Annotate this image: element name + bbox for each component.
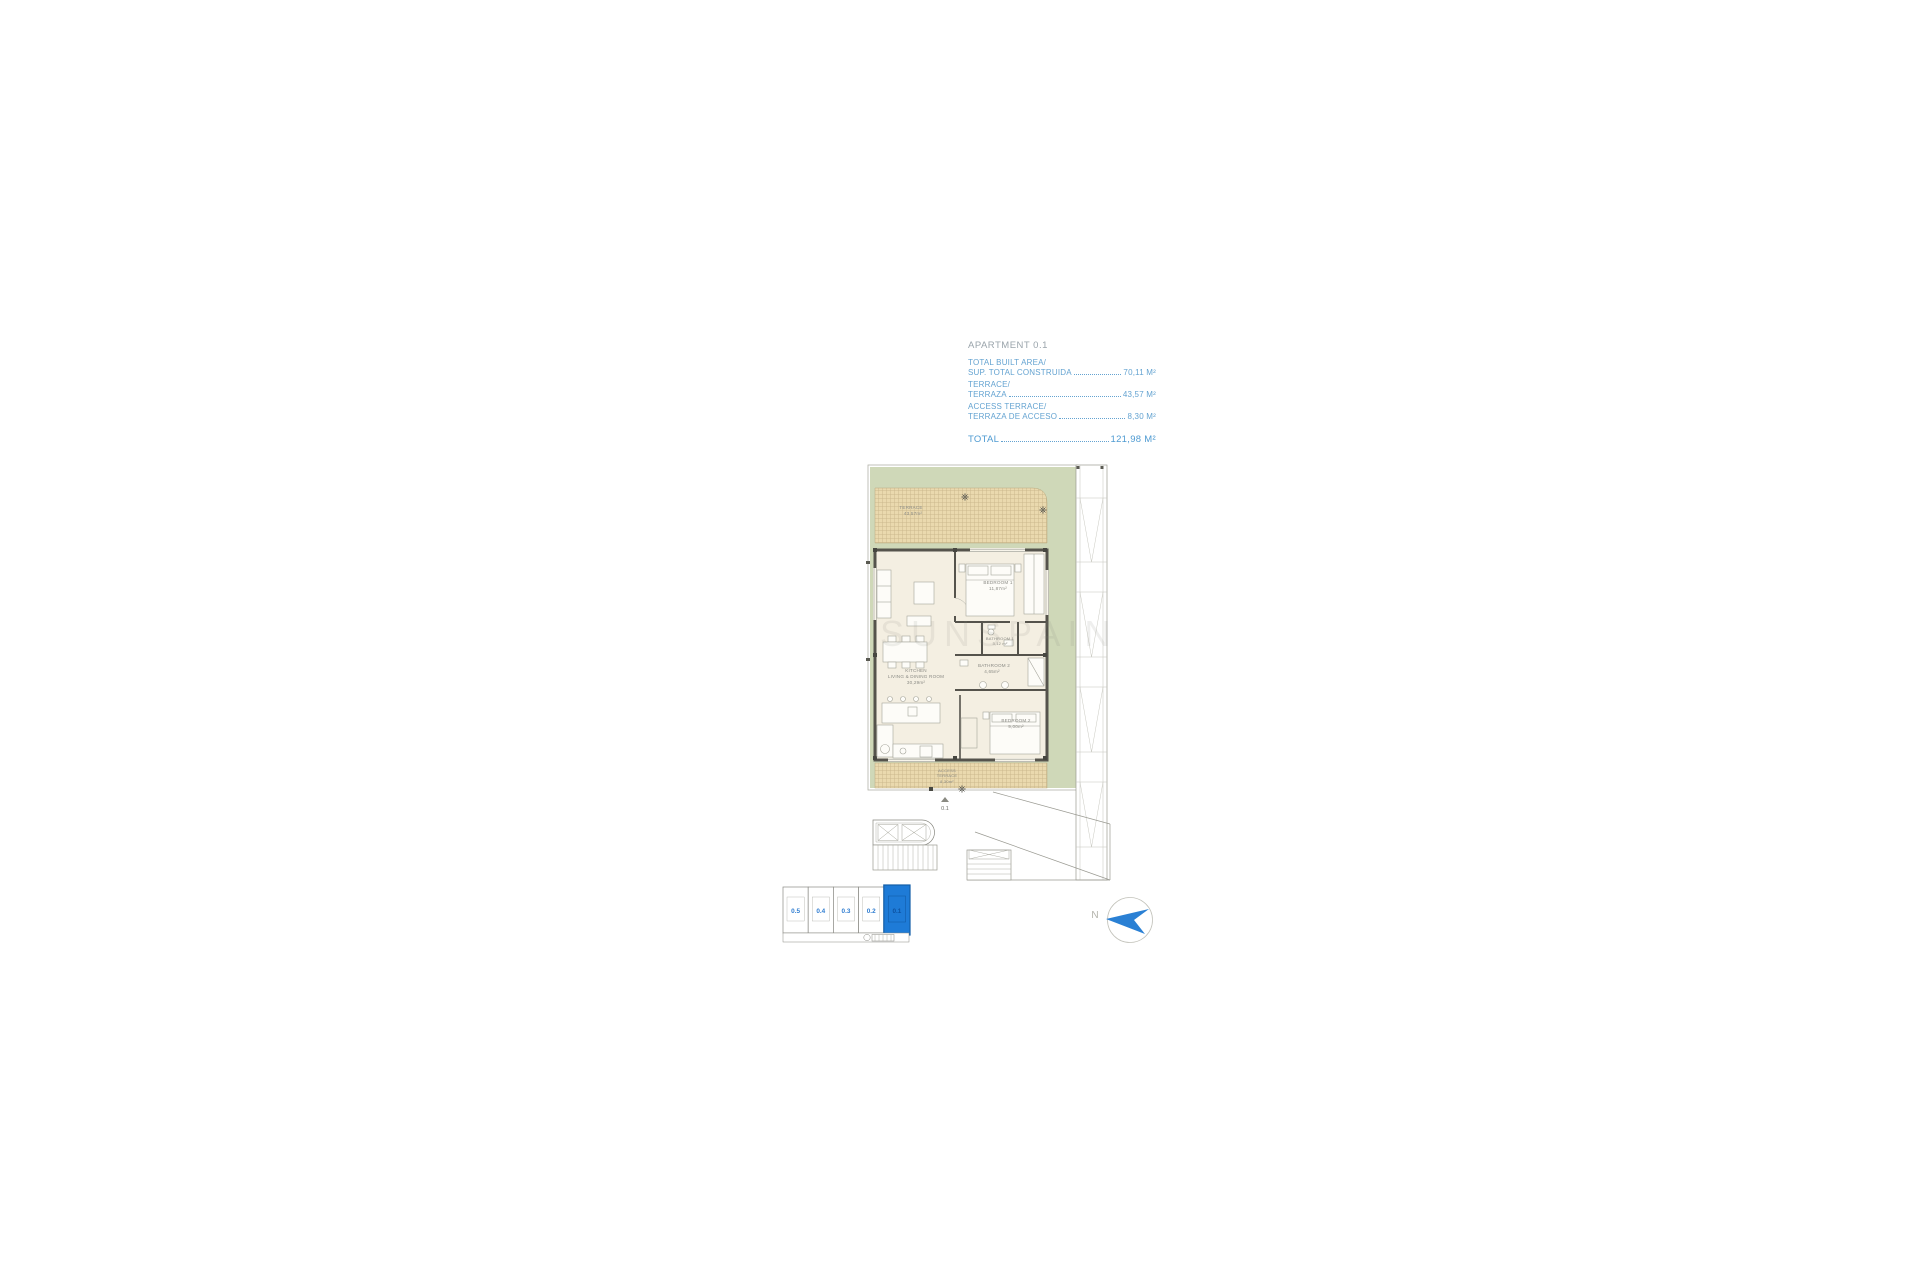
watermark-text: SUNSPAIN bbox=[880, 613, 1117, 654]
terrace-value: 43,57 M² bbox=[1123, 390, 1156, 400]
unit-entry-marker: 0.1 bbox=[941, 797, 949, 812]
apartment-title: APARTMENT 0.1 bbox=[968, 340, 1156, 351]
locator-unit-label: 0.1 bbox=[892, 908, 901, 915]
bedroom2-name-label: BEDROOM 2 bbox=[1001, 718, 1031, 723]
bedroom2-area-label: 9,00m² bbox=[1008, 724, 1024, 729]
total-value: 121,98 M² bbox=[1111, 434, 1156, 445]
locator-unit-0-5[interactable]: 0.5 bbox=[783, 887, 808, 933]
bedroom1-name-label: BEDROOM 1 bbox=[983, 580, 1013, 585]
locator-unit-0-3[interactable]: 0.3 bbox=[833, 887, 858, 933]
kitchen-name-label: KITCHEN bbox=[905, 668, 927, 673]
leader-dots bbox=[1074, 374, 1122, 375]
leader-dots bbox=[1009, 396, 1121, 397]
locator-unit-label: 0.5 bbox=[791, 908, 800, 915]
terrace-label-en: TERRACE/ bbox=[968, 380, 1156, 390]
bathroom2-area-label: 4,65m² bbox=[984, 669, 1000, 674]
built-area-label-en: TOTAL BUILT AREA/ bbox=[968, 358, 1156, 368]
unit-locator: 0.5 0.4 0.3 0.2 0.1 bbox=[783, 885, 910, 942]
north-compass: N bbox=[1091, 898, 1152, 943]
built-area-label-es: SUP. TOTAL CONSTRUIDA bbox=[968, 368, 1072, 378]
locator-unit-0-2[interactable]: 0.2 bbox=[859, 887, 884, 933]
north-arrow-icon bbox=[1106, 909, 1149, 934]
north-label: N bbox=[1091, 910, 1098, 921]
info-row-terrace: TERRACE/ TERRAZA 43,57 M² bbox=[968, 380, 1156, 399]
apartment-info-panel: APARTMENT 0.1 TOTAL BUILT AREA/ SUP. TOT… bbox=[968, 340, 1156, 445]
access-terrace-label-en: ACCESS TERRACE/ bbox=[968, 402, 1156, 412]
access-terrace-name2-label: TERRACE bbox=[937, 773, 958, 778]
terrace-area: TERRACE 43,57m² bbox=[875, 488, 1047, 543]
bedroom1-area-label: 11,87m² bbox=[989, 586, 1007, 591]
access-terrace-value: 8,30 M² bbox=[1127, 412, 1156, 422]
unit-marker-label: 0.1 bbox=[941, 806, 949, 812]
info-row-built-area: TOTAL BUILT AREA/ SUP. TOTAL CONSTRUIDA … bbox=[968, 358, 1156, 377]
locator-unit-0-4[interactable]: 0.4 bbox=[808, 887, 833, 933]
locator-unit-label: 0.3 bbox=[842, 908, 851, 915]
terrace-name-label: TERRACE bbox=[899, 505, 922, 510]
total-label: TOTAL bbox=[968, 434, 999, 445]
leader-dots bbox=[1001, 441, 1108, 442]
kitchen-name2-label: LIVING & DINING ROOM bbox=[888, 674, 944, 679]
floor-plan-page: APARTMENT 0.1 TOTAL BUILT AREA/ SUP. TOT… bbox=[0, 0, 1920, 1280]
access-terrace-area: ACCESS TERRACE 8,30m² bbox=[875, 763, 1047, 793]
terrace-label-es: TERRAZA bbox=[968, 390, 1007, 400]
locator-unit-0-1-highlighted[interactable]: 0.1 bbox=[884, 885, 910, 935]
bathroom2-name-label: BATHROOM 2 bbox=[978, 663, 1010, 668]
locator-unit-label: 0.4 bbox=[816, 908, 825, 915]
terrace-area-label: 43,57m² bbox=[904, 511, 923, 516]
access-terrace-area-label: 8,30m² bbox=[940, 779, 954, 784]
leader-dots bbox=[1059, 418, 1125, 419]
site-plan-svg: TERRACE 43,57m² bbox=[770, 450, 1170, 970]
access-terrace-label-es: TERRAZA DE ACCESO bbox=[968, 412, 1057, 422]
built-area-value: 70,11 M² bbox=[1123, 368, 1156, 378]
info-row-access-terrace: ACCESS TERRACE/ TERRAZA DE ACCESO 8,30 M… bbox=[968, 402, 1156, 421]
locator-base-strip bbox=[783, 933, 909, 942]
exterior-paths bbox=[873, 792, 1110, 880]
info-row-total: TOTAL 121,98 M² bbox=[968, 434, 1156, 445]
kitchen-area-label: 30,29m² bbox=[907, 680, 926, 685]
walkway-corridor bbox=[1076, 465, 1107, 880]
locator-unit-label: 0.2 bbox=[867, 908, 876, 915]
apartment-unit: BEDROOM 1 11,87m² BATHROOM 1 3,12 m² BAT… bbox=[873, 548, 1049, 762]
